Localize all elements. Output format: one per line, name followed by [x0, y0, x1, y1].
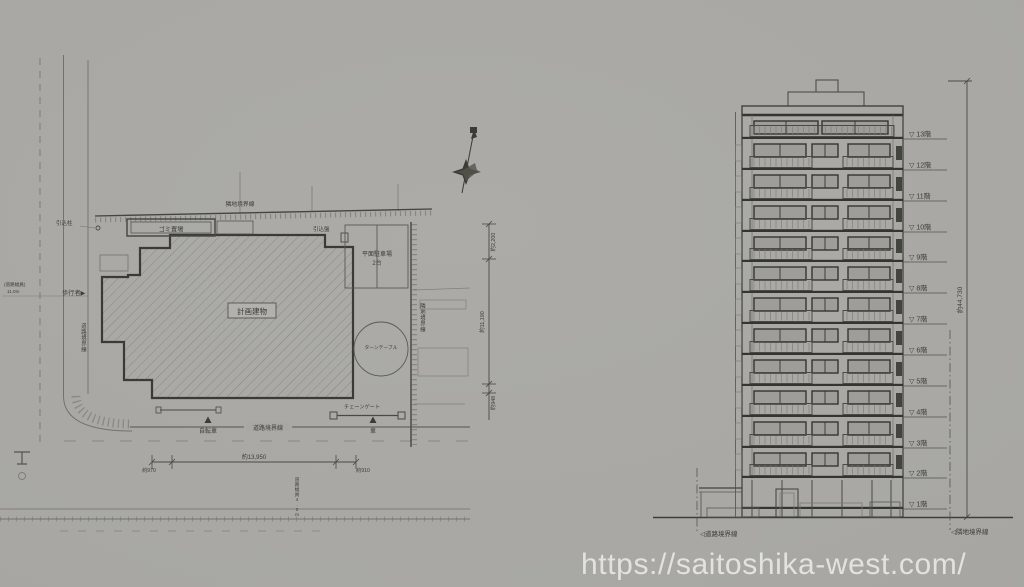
- boundary-road-bottom-label: 道路境界線: [253, 424, 283, 432]
- parking-label-line1: 平面駐車場: [362, 250, 392, 258]
- road-width-left-label-l2: 11.0m: [7, 289, 20, 294]
- total-height-label: 約44,730: [955, 286, 964, 313]
- height-dimension: 約44,730: [948, 78, 972, 520]
- floor-level-markers: ▽ 13階▽ 12階▽ 11階▽ 10階▽ 9階▽ 8階▽ 7階▽ 6階▽ 5階…: [903, 130, 947, 510]
- north-arrow-icon: [452, 127, 481, 193]
- road-width-left-label-l1: (道路幅員): [4, 281, 26, 288]
- dimensions-bottom: 約13,950 約970 約910: [142, 453, 370, 474]
- dim-right-top: 約2,200: [489, 233, 497, 252]
- floor-marker-label: ▽ 1階: [909, 500, 927, 509]
- dim-bottom-left: 約970: [142, 466, 156, 474]
- boundary-road-left-vertical-label: 道路境界線: [81, 322, 87, 353]
- dim-bottom-main: 約13,950: [242, 453, 267, 461]
- floor-marker-label: ▽ 4階: [909, 408, 927, 417]
- parking-area: 平面駐車場 2台: [345, 225, 408, 288]
- floor-marker-label: ▽ 11階: [909, 192, 931, 201]
- elevation: ▽ 13階▽ 12階▽ 11階▽ 10階▽ 9階▽ 8階▽ 7階▽ 6階▽ 5階…: [653, 78, 1013, 538]
- floor-marker-label: ▽ 5階: [909, 377, 927, 386]
- garbage-area: ゴミ置場: [127, 219, 253, 236]
- floor-marker-label: ▽ 2階: [909, 469, 927, 478]
- planned-building: 計画建物: [100, 235, 353, 398]
- boundary-right-vertical-label: 隣地境界線: [420, 302, 426, 333]
- parking-label-line2: 2台: [372, 259, 381, 267]
- floor-marker-label: ▽ 6階: [909, 346, 927, 355]
- chain-gate-label: チェーンゲート: [344, 403, 380, 411]
- turntable: ターンテーブル: [354, 322, 408, 376]
- turntable-label: ターンテーブル: [364, 344, 397, 351]
- architectural-drawing-photo: 計画建物 ゴミ置場 引込柱 引込盤 平面駐車場 2台 ターンテーブル: [0, 0, 1024, 587]
- floor-marker-label: ▽ 9階: [909, 253, 927, 262]
- rooftop-structures: [742, 80, 903, 115]
- floor-marker-label: ▽ 3階: [909, 439, 927, 448]
- dim-bottom-right: 約910: [356, 466, 370, 474]
- car-marker-icon: [370, 417, 377, 424]
- garbage-label: ゴミ置場: [159, 226, 184, 234]
- floor-marker-label: ▽ 10階: [909, 223, 931, 232]
- gates: チェーンゲート: [156, 403, 405, 420]
- drawing-canvas: 計画建物 ゴミ置場 引込柱 引込盤 平面駐車場 2台 ターンテーブル: [0, 0, 1024, 587]
- bicycle-label: 自転車: [199, 427, 217, 435]
- facade-floors: [736, 121, 904, 517]
- car-label: 車: [370, 427, 376, 435]
- building-footprint: [102, 235, 353, 398]
- watermark-url: https://saitoshika-west.com/: [581, 548, 966, 582]
- floor-marker-label: ▽ 8階: [909, 284, 927, 293]
- pedestrian-label: 歩行者▶: [62, 289, 86, 297]
- dim-right-bottom: 約948: [489, 396, 497, 410]
- building-facade: [736, 106, 904, 517]
- boundary-road-label: ◁道路境界線: [700, 529, 738, 538]
- planned-building-label: 計画建物: [237, 306, 267, 316]
- bicycle-marker-icon: [205, 417, 212, 424]
- boundary-top-label: 隣地境界線: [226, 200, 255, 208]
- floor-marker-label: ▽ 12階: [909, 161, 931, 170]
- lead-in-panel-label: 引込盤: [313, 225, 330, 233]
- lead-in-pole-label: 引込柱: [56, 219, 73, 227]
- floor-marker-label: ▽ 7階: [909, 315, 927, 324]
- road-width-bottom-label: 道路幅員4.0m: [295, 476, 300, 517]
- floor-marker-label: ▽ 13階: [909, 130, 931, 139]
- dimensions-right: 約2,200 約11,190 約948: [478, 221, 497, 420]
- site-plan: 計画建物 ゴミ置場 引込柱 引込盤 平面駐車場 2台 ターンテーブル: [0, 55, 497, 531]
- boundary-adjacent-label: ◁隣地境界線: [951, 527, 989, 536]
- dim-right-mid: 約11,190: [478, 311, 486, 332]
